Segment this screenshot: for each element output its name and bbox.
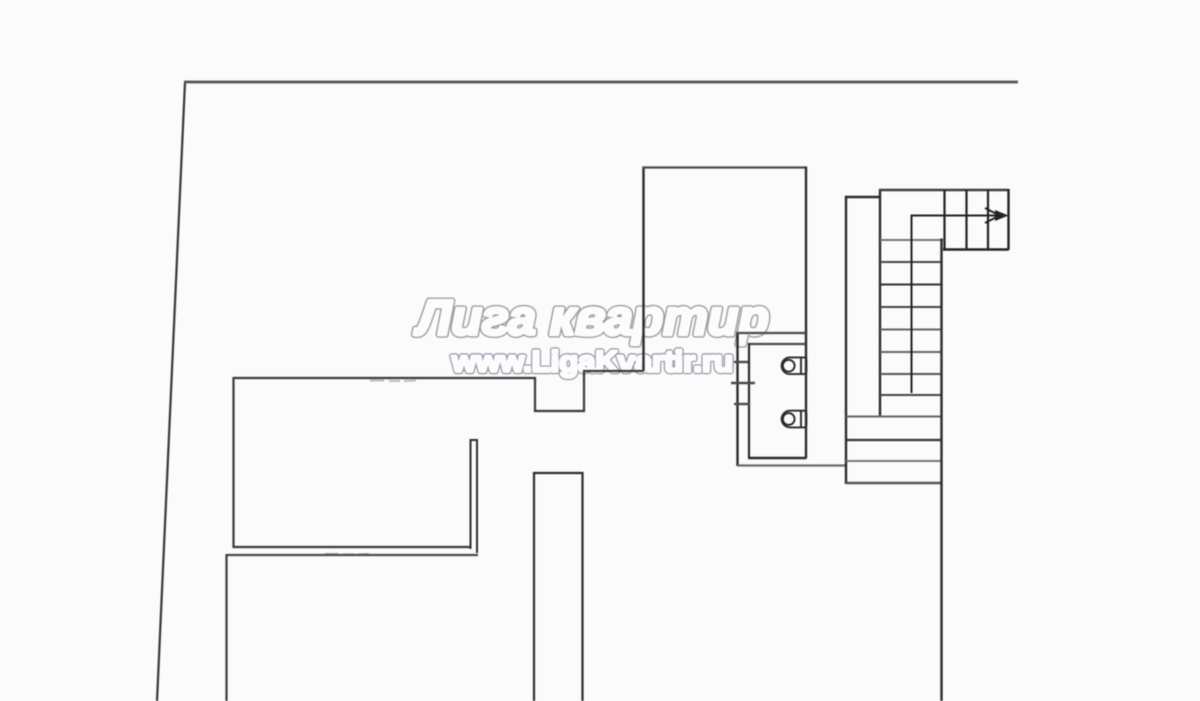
svg-text:Лига квартир: Лига квартир: [414, 292, 769, 346]
svg-text:www.LigaKvartir.ru: www.LigaKvartir.ru: [451, 346, 733, 379]
